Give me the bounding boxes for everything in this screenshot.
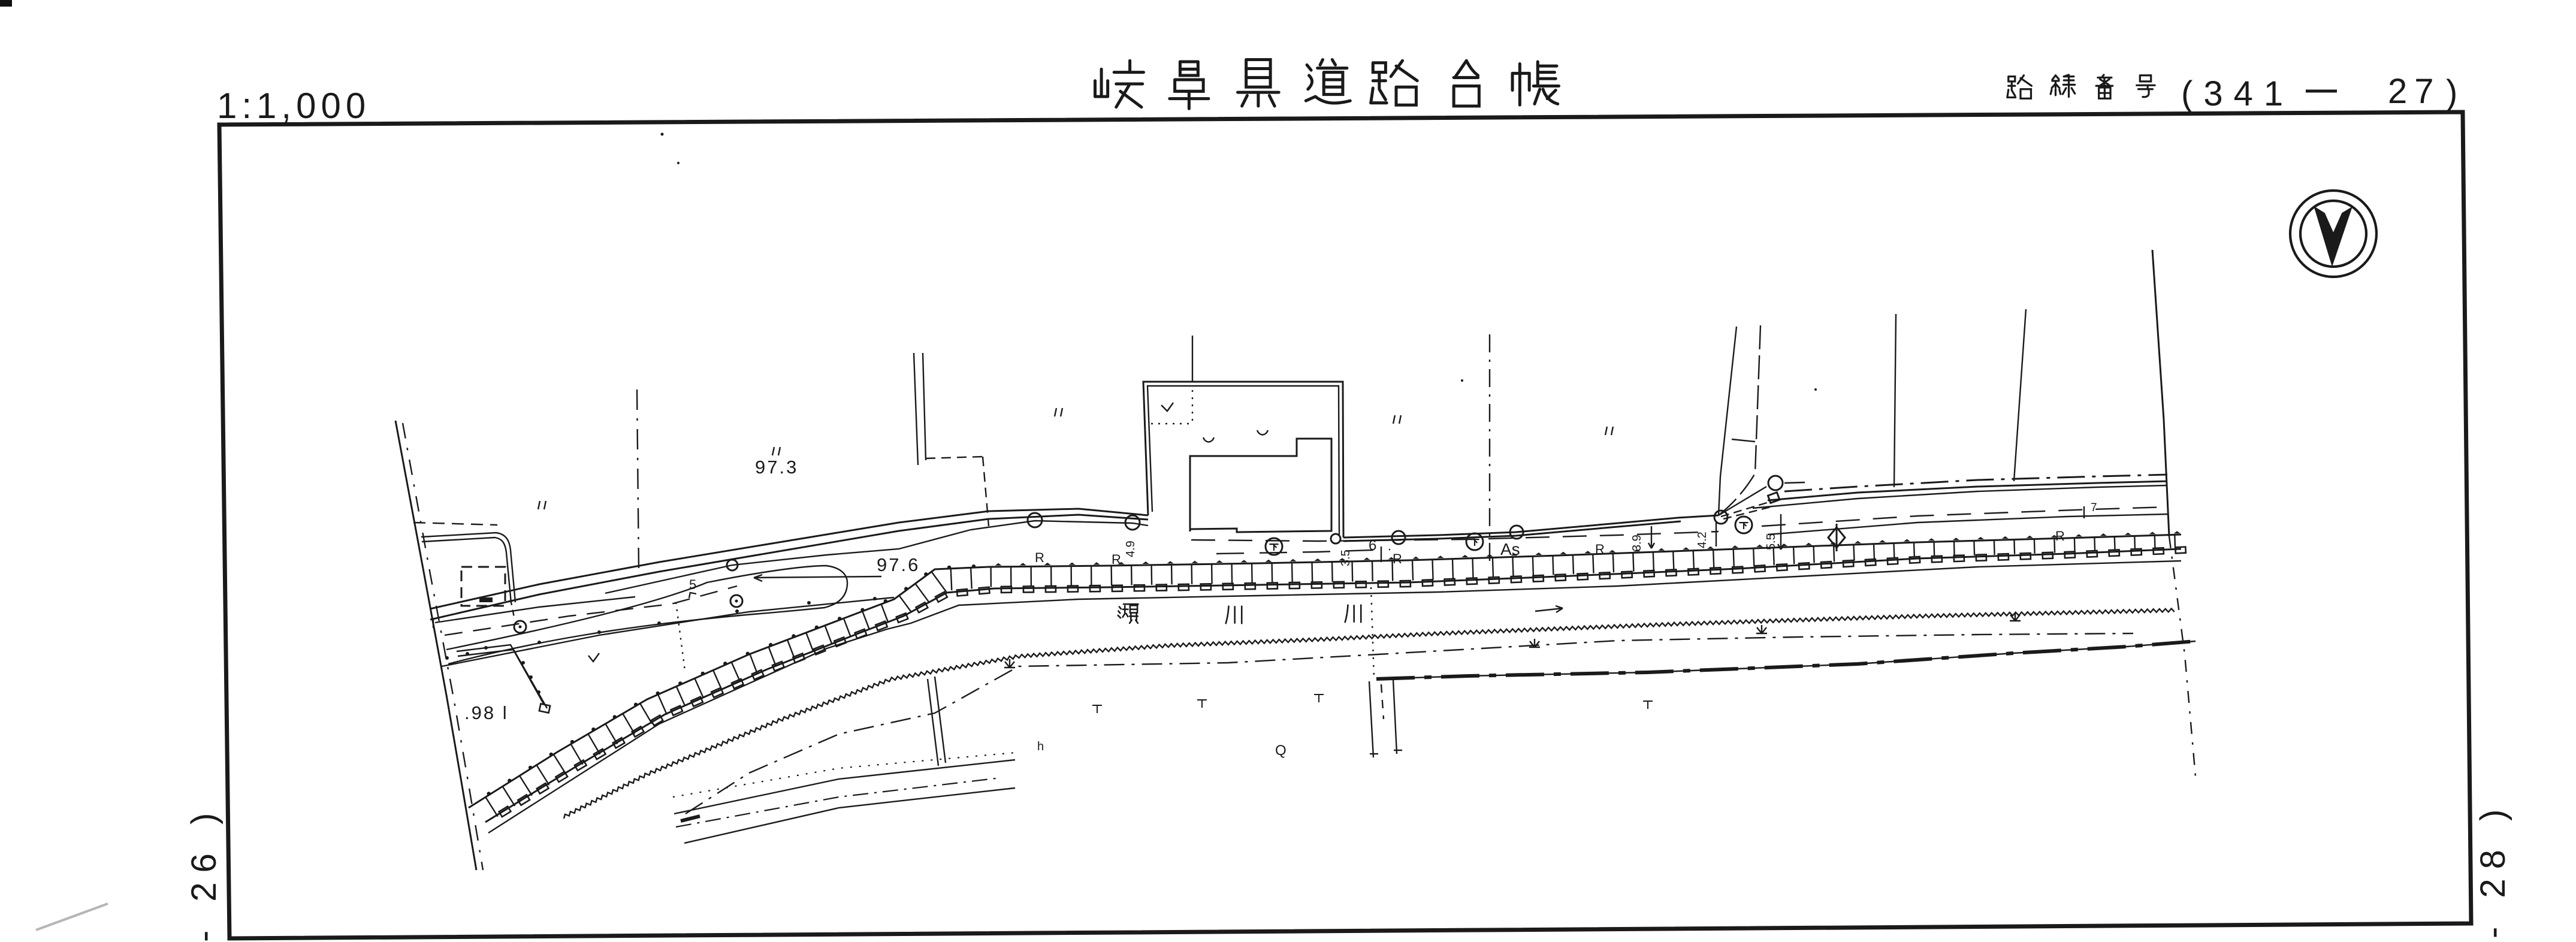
svg-text:1:1,000: 1:1,000 [217,86,370,126]
svg-text:97.3: 97.3 [755,457,798,478]
svg-text:3.9: 3.9 [1630,535,1644,551]
svg-text:3.5: 3.5 [1339,549,1352,566]
svg-text:R: R [1595,542,1605,557]
svg-text:.98 l: .98 l [464,702,509,723]
svg-text:27: 27 [2388,72,2441,111]
svg-text:R: R [1035,550,1044,565]
svg-text:5: 5 [689,577,696,592]
svg-text:h: h [1037,740,1044,753]
svg-text:- 28 ): - 28 ) [2474,800,2512,938]
svg-text:R: R [1393,551,1402,566]
svg-text:As: As [1500,540,1520,558]
svg-text:Q: Q [1275,742,1287,759]
svg-text:R: R [2055,529,2065,544]
svg-text:6: 6 [1369,538,1376,554]
svg-text:97.6: 97.6 [877,554,920,575]
svg-text:- 26 ): - 26 ) [185,804,224,942]
svg-text:): ) [2446,73,2457,112]
svg-text:4.9: 4.9 [1124,541,1137,557]
svg-text:5.5: 5.5 [1765,533,1778,550]
svg-text:R: R [1112,552,1121,567]
svg-text:4.2: 4.2 [1696,532,1709,548]
svg-text:7: 7 [2091,502,2097,514]
svg-text:(341: (341 [2181,74,2294,113]
